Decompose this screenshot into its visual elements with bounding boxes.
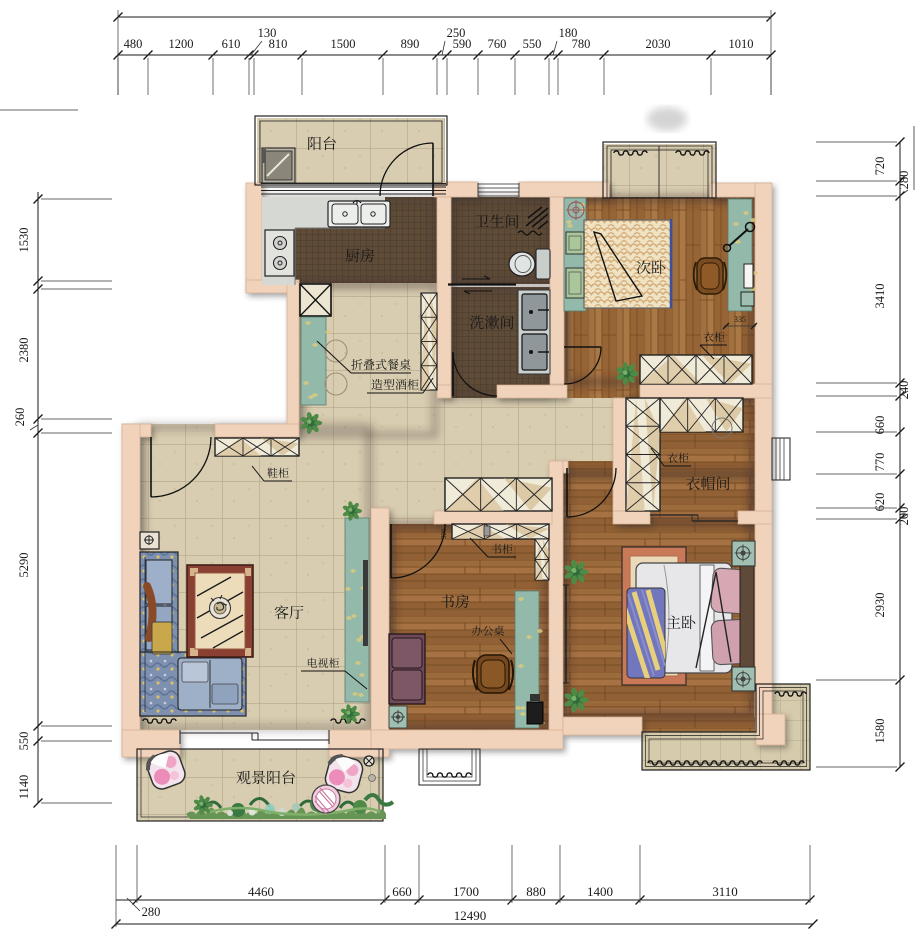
svg-text:1530: 1530	[17, 228, 31, 253]
svg-text:130: 130	[258, 26, 277, 40]
svg-text:770: 770	[873, 453, 887, 472]
svg-text:1580: 1580	[873, 719, 887, 744]
svg-text:660: 660	[392, 884, 412, 899]
svg-text:2380: 2380	[17, 338, 31, 363]
svg-text:480: 480	[124, 37, 143, 51]
svg-text:260: 260	[13, 408, 27, 427]
svg-text:280: 280	[897, 171, 911, 190]
svg-text:3110: 3110	[712, 884, 738, 899]
svg-text:4460: 4460	[248, 884, 274, 899]
svg-text:760: 760	[488, 37, 507, 51]
svg-text:240: 240	[897, 381, 911, 400]
svg-text:720: 720	[873, 157, 887, 176]
svg-text:1400: 1400	[587, 884, 613, 899]
svg-text:890: 890	[401, 37, 420, 51]
svg-text:250: 250	[447, 26, 466, 40]
svg-text:200: 200	[897, 507, 911, 526]
svg-text:2930: 2930	[873, 593, 887, 618]
svg-text:300: 300	[440, 528, 448, 539]
svg-text:550: 550	[17, 732, 31, 751]
svg-text:280: 280	[142, 905, 161, 919]
svg-text:880: 880	[526, 884, 546, 899]
svg-text:610: 610	[222, 37, 241, 51]
svg-text:620: 620	[873, 493, 887, 512]
svg-text:335: 335	[734, 315, 746, 324]
svg-text:1700: 1700	[453, 884, 479, 899]
svg-text:660: 660	[873, 416, 887, 435]
svg-text:550: 550	[523, 37, 542, 51]
svg-text:2030: 2030	[646, 37, 671, 51]
svg-text:1140: 1140	[17, 775, 31, 800]
svg-text:12490: 12490	[454, 908, 487, 923]
svg-text:5290: 5290	[17, 553, 31, 578]
svg-text:1010: 1010	[729, 37, 754, 51]
svg-text:3410: 3410	[873, 284, 887, 309]
svg-text:180: 180	[559, 26, 578, 40]
svg-text:1200: 1200	[169, 37, 194, 51]
svg-text:1500: 1500	[331, 37, 356, 51]
